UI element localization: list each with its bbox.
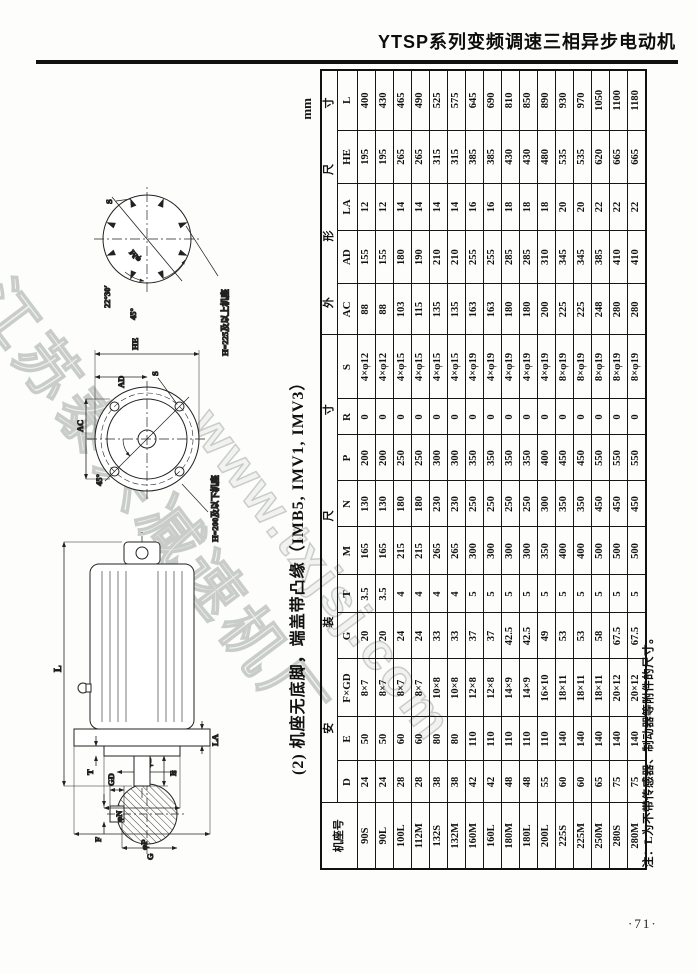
value-cell: 0 [628,399,647,435]
value-cell: 60 [412,717,430,761]
column-header-R: R [338,399,358,435]
value-cell: 300 [448,435,466,481]
value-cell: 4×φ19 [502,335,520,399]
value-cell: 14 [430,184,448,231]
value-cell: 10×8 [430,659,448,717]
value-cell: 0 [484,399,502,435]
column-header-AC: AC [338,284,358,335]
dimension-table: 机座号安 装 尺 寸外 形 尺 寸DEF×GDGTMNPRSACADLAHEL9… [320,69,647,870]
value-cell: 140 [574,717,592,761]
column-header-F×GD: F×GD [338,659,358,717]
catalog-page: YTSP系列变频调速三相异步电动机 江苏泰兴减速机厂 www.txjsj.com [0,0,697,974]
value-cell: 5 [538,575,556,613]
dim-label-S-flange: S [150,371,160,376]
value-cell: 5 [574,575,592,613]
value-cell: 255 [484,230,502,283]
column-header-D: D [338,761,358,803]
value-cell: 350 [538,527,556,575]
value-cell: 22 [628,184,647,231]
table-row-280S: 280S7514020×1267.5550045055008×φ19280410… [610,70,628,869]
value-cell: 20×12 [610,659,628,717]
value-cell: 163 [466,284,484,335]
value-cell: 42 [466,761,484,803]
value-cell: 14 [412,184,430,231]
table-row-90S: 90S24508×7203.516513020004×φ128815512195… [358,70,376,869]
value-cell: 550 [592,435,610,481]
value-cell: 400 [556,527,574,575]
value-cell: 4 [394,575,412,613]
value-cell: 5 [556,575,574,613]
value-cell: 0 [430,399,448,435]
value-cell: 0 [502,399,520,435]
value-cell: 450 [610,481,628,527]
value-cell: 18 [520,184,538,231]
dim-label-T: T [85,769,95,775]
header-group-outline: 外 形 尺 寸 [321,70,338,335]
value-cell: 14 [448,184,466,231]
value-cell: 20 [358,613,376,659]
table-row-132M: 132M388010×833426523030004×φ151352101431… [448,70,466,869]
value-cell: 163 [484,284,502,335]
frame-size-cell: 90L [376,803,394,869]
value-cell: 155 [376,230,394,283]
dim-label-GD: GD [106,773,116,786]
value-cell: 225 [556,284,574,335]
note-small-frames: H=200及以下机座 [210,475,220,542]
value-cell: 215 [412,527,430,575]
value-cell: 385 [592,230,610,283]
value-cell: 24 [358,761,376,803]
value-cell: 28 [394,761,412,803]
value-cell: 310 [538,230,556,283]
dim-label-L: L [53,665,64,672]
value-cell: 110 [466,717,484,761]
value-cell: 0 [448,399,466,435]
value-cell: 24 [394,613,412,659]
value-cell: 37 [466,613,484,659]
value-cell: 250 [502,481,520,527]
value-cell: 18 [538,184,556,231]
value-cell: 8×φ19 [610,335,628,399]
header-group-installation: 安 装 尺 寸 [321,335,338,803]
value-cell: 385 [466,130,484,183]
value-cell: 12×8 [466,659,484,717]
value-cell: 110 [538,717,556,761]
value-cell: 215 [394,527,412,575]
value-cell: 450 [592,481,610,527]
value-cell: 345 [556,230,574,283]
value-cell: 10×8 [448,659,466,717]
section-caption: (2) 机座无底脚，端盖带凸缘（IMB5, IMV1, IMV3） [284,374,308,775]
value-cell: 8×7 [412,659,430,717]
table-row-200L: 200L5511016×1049535030040004×φ1920031018… [538,70,556,869]
value-cell: 230 [448,481,466,527]
value-cell: 210 [448,230,466,283]
value-cell: 350 [502,435,520,481]
angle-2230-label: 22°30′ [102,285,112,308]
value-cell: 53 [556,613,574,659]
value-cell: 300 [502,527,520,575]
value-cell: 200 [358,435,376,481]
value-cell: 255 [466,230,484,283]
value-cell: 190 [412,230,430,283]
value-cell: 5 [484,575,502,613]
value-cell: 430 [502,130,520,183]
value-cell: 103 [394,284,412,335]
value-cell: 180 [520,284,538,335]
value-cell: 4×φ12 [358,335,376,399]
value-cell: 140 [610,717,628,761]
value-cell: 33 [448,613,466,659]
value-cell: 195 [376,130,394,183]
value-cell: 500 [610,527,628,575]
value-cell: 410 [628,230,647,283]
frame-size-cell: 160L [484,803,502,869]
value-cell: 14×9 [520,659,538,717]
value-cell: 410 [610,230,628,283]
value-cell: 60 [574,761,592,803]
table-row-250M: 250M6514018×1158550045055008×φ1924838522… [592,70,610,869]
value-cell: 50 [358,717,376,761]
value-cell: 250 [466,481,484,527]
value-cell: 130 [376,481,394,527]
value-cell: 50 [376,717,394,761]
value-cell: 4×φ19 [520,335,538,399]
value-cell: 450 [556,435,574,481]
value-cell: 5 [628,575,647,613]
value-cell: 180 [502,284,520,335]
value-cell: 135 [430,284,448,335]
value-cell: 165 [376,527,394,575]
value-cell: 5 [466,575,484,613]
dim-label-E: E [168,770,178,776]
value-cell: 230 [430,481,448,527]
value-cell: 42 [484,761,502,803]
value-cell: 16 [484,184,502,231]
value-cell: 8×7 [376,659,394,717]
value-cell: 42.5 [520,613,538,659]
table-row-180M: 180M4811014×942.5530025035004×φ191802851… [502,70,520,869]
value-cell: 400 [574,527,592,575]
value-cell: 8×φ19 [628,335,647,399]
value-cell: 22 [592,184,610,231]
bolt-circle-drawing: φM 22°30′ 45° S H=225及以上机座 [94,186,230,356]
value-cell: 300 [538,481,556,527]
table-row-225S: 225S6014018×1153540035045008×φ1922534520… [556,70,574,869]
table-row-90L: 90L24508×7203.516513020004×φ128815512195… [376,70,394,869]
value-cell: 250 [520,481,538,527]
value-cell: 525 [430,70,448,130]
value-cell: 4 [412,575,430,613]
value-cell: 315 [448,130,466,183]
value-cell: 88 [376,284,394,335]
column-header-E: E [338,717,358,761]
value-cell: 4×φ15 [430,335,448,399]
value-cell: 535 [574,130,592,183]
value-cell: 300 [466,527,484,575]
value-cell: 20 [376,613,394,659]
frame-size-cell: 100L [394,803,412,869]
value-cell: 500 [628,527,647,575]
value-cell: 665 [610,130,628,183]
value-cell: 8×7 [394,659,412,717]
value-cell: 280 [610,284,628,335]
value-cell: 550 [610,435,628,481]
value-cell: 3.5 [376,575,394,613]
value-cell: 970 [574,70,592,130]
value-cell: 315 [430,130,448,183]
value-cell: 75 [610,761,628,803]
value-cell: 8×7 [358,659,376,717]
table-note: 注：L为不带传感器、制动器等附件的尺寸。 [640,632,656,868]
value-cell: 210 [430,230,448,283]
value-cell: 0 [538,399,556,435]
value-cell: 14×9 [502,659,520,717]
value-cell: 345 [574,230,592,283]
table-row-160M: 160M4211012×837530025035004×φ19163255163… [466,70,484,869]
dim-label-AD: AD [116,376,126,388]
value-cell: 350 [466,435,484,481]
value-cell: 450 [628,481,647,527]
value-cell: 0 [592,399,610,435]
value-cell: 4×φ15 [412,335,430,399]
value-cell: 1050 [592,70,610,130]
dim-label-S-bolt: S [104,199,114,204]
table-row-160L: 160L4211012×837530025035004×φ19163255163… [484,70,502,869]
value-cell: 265 [448,527,466,575]
value-cell: 450 [574,435,592,481]
value-cell: 620 [592,130,610,183]
value-cell: 5 [520,575,538,613]
value-cell: 49 [538,613,556,659]
value-cell: 265 [412,130,430,183]
dim-label-LA: LA [210,733,220,746]
dim-label-phiP: φP [139,840,149,851]
value-cell: 20 [556,184,574,231]
value-cell: 480 [538,130,556,183]
column-header-AD: AD [338,230,358,283]
value-cell: 4×φ19 [466,335,484,399]
value-cell: 250 [394,435,412,481]
frame-size-cell: 112M [412,803,430,869]
value-cell: 645 [466,70,484,130]
value-cell: 248 [592,284,610,335]
value-cell: 285 [520,230,538,283]
value-cell: 265 [430,527,448,575]
value-cell: 37 [484,613,502,659]
flange-face-view-drawing: 45° AC AD HE S [75,337,220,542]
value-cell: 280 [628,284,647,335]
value-cell: 155 [358,230,376,283]
value-cell: 500 [592,527,610,575]
value-cell: 4×φ15 [394,335,412,399]
value-cell: 33 [430,613,448,659]
value-cell: 180 [394,481,412,527]
value-cell: 4×φ19 [538,335,556,399]
dim-label-F: F [93,837,103,842]
frame-size-cell: 250M [592,803,610,869]
value-cell: 3.5 [358,575,376,613]
value-cell: 38 [448,761,466,803]
value-cell: 490 [412,70,430,130]
dim-label-HE: HE [130,337,140,350]
dim-label-G: G [145,853,155,860]
frame-size-cell: 200L [538,803,556,869]
value-cell: 42.5 [502,613,520,659]
value-cell: 14 [394,184,412,231]
value-cell: 225 [574,284,592,335]
value-cell: 4×φ12 [376,335,394,399]
unit-label: mm [299,98,315,168]
value-cell: 0 [466,399,484,435]
value-cell: 58 [592,613,610,659]
value-cell: 4 [448,575,466,613]
column-header-L: L [338,70,358,130]
dim-label-phiN: φN [114,810,124,822]
value-cell: 200 [376,435,394,481]
value-cell: 300 [484,527,502,575]
value-cell: 0 [394,399,412,435]
value-cell: 48 [520,761,538,803]
value-cell: 24 [376,761,394,803]
table-row-100L: 100L28608×724421518025004×φ1510318014265… [394,70,412,869]
note-large-frames: H=225及以上机座 [220,289,230,356]
value-cell: 0 [520,399,538,435]
value-cell: 22 [610,184,628,231]
value-cell: 850 [520,70,538,130]
rotated-content: F GD φD G [0,0,697,974]
table-row-132S: 132S388010×833426523030004×φ151352101431… [430,70,448,869]
frame-size-cell: 225M [574,803,592,869]
frame-size-cell: 280S [610,803,628,869]
column-header-S: S [338,335,358,399]
value-cell: 110 [502,717,520,761]
value-cell: 5 [592,575,610,613]
value-cell: 0 [574,399,592,435]
value-cell: 110 [520,717,538,761]
value-cell: 20 [574,184,592,231]
value-cell: 890 [538,70,556,130]
value-cell: 265 [394,130,412,183]
value-cell: 140 [556,717,574,761]
angle-45-label: 45° [94,474,104,486]
value-cell: 350 [574,481,592,527]
value-cell: 285 [502,230,520,283]
table-row-225M: 225M6014018×1153540035045008×φ1922534520… [574,70,592,869]
frame-size-cell: 160M [466,803,484,869]
value-cell: 5 [502,575,520,613]
value-cell: 465 [394,70,412,130]
frame-size-cell: 132M [448,803,466,869]
value-cell: 55 [538,761,556,803]
column-header-P: P [338,435,358,481]
value-cell: 385 [484,130,502,183]
value-cell: 12 [376,184,394,231]
value-cell: 28 [412,761,430,803]
value-cell: 810 [502,70,520,130]
value-cell: 80 [430,717,448,761]
value-cell: 550 [628,435,647,481]
value-cell: 0 [610,399,628,435]
value-cell: 400 [538,435,556,481]
header-frame-size: 机座号 [321,803,358,869]
value-cell: 250 [412,435,430,481]
value-cell: 140 [592,717,610,761]
value-cell: 195 [358,130,376,183]
value-cell: 80 [448,717,466,761]
value-cell: 350 [484,435,502,481]
value-cell: 24 [412,613,430,659]
value-cell: 300 [430,435,448,481]
value-cell: 690 [484,70,502,130]
value-cell: 430 [376,70,394,130]
value-cell: 110 [484,717,502,761]
value-cell: 4×φ19 [484,335,502,399]
value-cell: 115 [412,284,430,335]
column-header-G: G [338,613,358,659]
value-cell: 535 [556,130,574,183]
value-cell: 1180 [628,70,647,130]
value-cell: 67.5 [610,613,628,659]
column-header-HE: HE [338,130,358,183]
value-cell: 16 [466,184,484,231]
value-cell: 4×φ15 [448,335,466,399]
value-cell: 1100 [610,70,628,130]
value-cell: 8×φ19 [574,335,592,399]
value-cell: 12×8 [484,659,502,717]
value-cell: 53 [574,613,592,659]
value-cell: 135 [448,284,466,335]
value-cell: 38 [430,761,448,803]
value-cell: 0 [412,399,430,435]
value-cell: 180 [412,481,430,527]
column-header-T: T [338,575,358,613]
value-cell: 12 [358,184,376,231]
value-cell: 350 [556,481,574,527]
value-cell: 60 [556,761,574,803]
value-cell: 665 [628,130,647,183]
value-cell: 350 [520,435,538,481]
table-row-112M: 112M28608×724421518025004×φ1511519014265… [412,70,430,869]
value-cell: 48 [502,761,520,803]
value-cell: 180 [394,230,412,283]
value-cell: 18×11 [574,659,592,717]
value-cell: 130 [358,481,376,527]
frame-size-cell: 225S [556,803,574,869]
value-cell: 0 [376,399,394,435]
value-cell: 430 [520,130,538,183]
value-cell: 400 [358,70,376,130]
value-cell: 300 [520,527,538,575]
value-cell: 575 [448,70,466,130]
value-cell: 0 [556,399,574,435]
value-cell: 60 [394,717,412,761]
dimension-figure: F GD φD G [52,134,252,894]
value-cell: 200 [538,284,556,335]
value-cell: 5 [610,575,628,613]
frame-size-cell: 132S [430,803,448,869]
table-row-180L: 180L4811014×942.5530025035004×φ191802851… [520,70,538,869]
value-cell: 8×φ19 [592,335,610,399]
column-header-M: M [338,527,358,575]
value-cell: 16×10 [538,659,556,717]
value-cell: 165 [358,527,376,575]
dim-label-AC: AC [75,420,85,432]
column-header-LA: LA [338,184,358,231]
value-cell: 65 [592,761,610,803]
value-cell: 88 [358,284,376,335]
value-cell: 8×φ19 [556,335,574,399]
